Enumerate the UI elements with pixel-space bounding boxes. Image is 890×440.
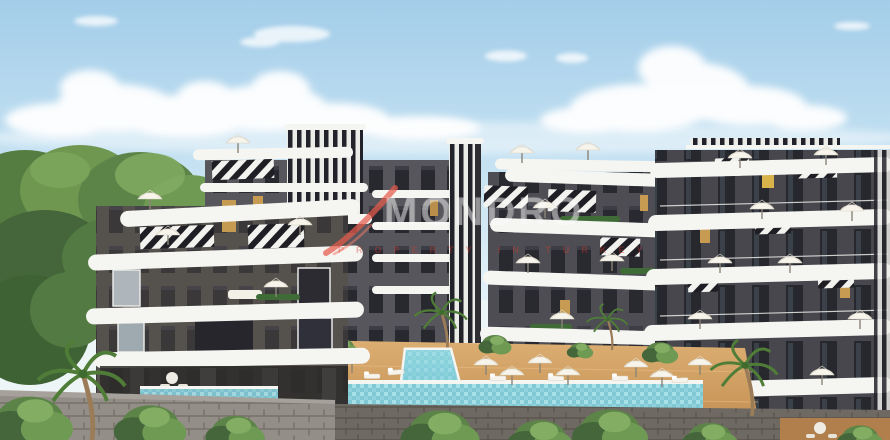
watermark-tagline-text: PROPERTY IN TURKEY: [338, 245, 654, 255]
diagonal-stripe-panel: [212, 159, 275, 180]
render-image: MONDRO PROPERTY IN TURKEY: [0, 0, 890, 440]
watermark-brand-text: MONDRO: [384, 190, 584, 235]
